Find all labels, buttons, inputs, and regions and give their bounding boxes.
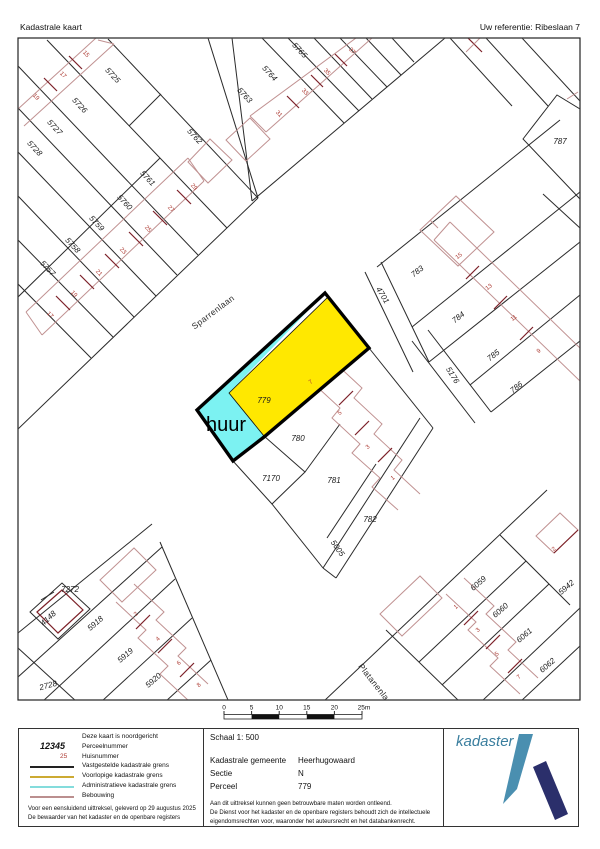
parcel-label: 5918 [86,614,106,633]
parcel-label: 4148 [39,609,59,628]
info-row-label: Kadastrale gemeente [210,756,286,765]
parcel-label: 5764 [260,64,279,84]
house-number: 19 [69,290,78,299]
parcel-label: 782 [363,515,377,524]
parcel-label: 6060 [491,601,511,620]
house-number: 29 [189,183,198,192]
legend-line-label: Administratieve kadastrale grens [82,782,176,789]
parcel-label: 6062 [538,656,558,675]
house-number: 35 [322,68,331,77]
disclaimer-line: De Dienst voor het kadaster en de openba… [210,810,430,816]
legend-parcel-sample: 12345 [40,741,65,751]
parcel-label: 7170 [262,474,280,483]
parcel-label: 781 [327,476,340,485]
legend-footer-2: De bewaarder van het kadaster en de open… [28,815,180,821]
legend-house-sample: 25 [60,753,67,760]
parcel-label: 5759 [87,214,106,234]
house-number: 9 [536,348,543,355]
scale-tick-label: 20 [331,705,339,712]
parcel-label: 7272 [61,585,79,594]
house-number: 15 [81,50,90,59]
house-number: 19 [31,93,40,102]
legend-line-administratief [30,786,74,788]
house-number: 6 [176,660,183,667]
house-number: 1 [453,604,460,611]
legend-north-note: Deze kaart is noordgericht [82,733,158,740]
disclaimer-line: Aan dit uittreksel kunnen geen betrouwba… [210,801,392,807]
parcel-label: 5726 [70,96,89,116]
legend-line-bebouwing [30,796,74,798]
house-number: 25 [143,225,152,234]
parcel-label: 5760 [115,193,134,213]
house-number: 15 [455,252,464,261]
scale-tick-label: 25m [358,705,371,712]
scale-tick-label: 5 [250,705,254,712]
house-number: 3 [475,627,482,634]
legend-footer-1: Voor een eensluidend uittreksel, gelever… [28,806,196,812]
legend-line-vastgesteld [30,766,74,768]
info-row-value: N [298,769,304,778]
parcel-label: 5728 [25,139,44,159]
scale-text: Schaal 1: 500 [210,733,259,742]
info-row-label: Perceel [210,782,237,791]
disclaimer-line: eigendomsrechten voor, waaronder het aut… [210,819,415,825]
street-label-sparrenlaan: Sparrenlaan [190,293,237,332]
legend-line-voorlopig [30,776,74,778]
scale-bar: 0 5 10 15 20 25m [222,705,370,720]
legend-house-label: Huisnummer [82,753,119,760]
parcel-label: 5763 [235,86,254,106]
parcel-label: 6059 [469,574,489,593]
house-number: 4 [155,636,162,643]
house-number: 5 [494,651,501,658]
parcel-label: 6061 [515,626,534,644]
kadaster-wordmark: kadaster [456,733,514,750]
parcel-label: 5761 [138,169,157,188]
parcel-label: 780 [291,434,305,443]
cadastral-map: Sparrenlaan Platanenlaan huur 5725 5726 … [0,0,600,849]
scale-tick-label: 15 [303,705,311,712]
parcel-label: 784 [450,309,466,325]
legend-line-label: Voorlopige kadastrale grens [82,772,163,779]
house-number: 5 [337,410,344,417]
parcel-label: 5942 [557,578,577,597]
house-number: 7 [516,674,523,681]
parcel-label: 5919 [116,646,136,665]
parcel-label: 787 [553,137,567,146]
legend-parcel-label: Perceelnummer [82,743,128,750]
info-row-value: Heerhugowaard [298,756,355,765]
house-number: 17 [58,71,67,80]
info-row-label: Sectie [210,769,232,778]
house-number: 37 [347,47,356,56]
panel-divider [443,728,444,827]
house-number: 3 [365,444,372,451]
legend-line-label: Vastgestelde kadastrale grens [82,762,169,769]
house-number: 33 [300,88,309,97]
kadastrale-kaart-page: Kadastrale kaart Uw referentie: Ribeslaa… [0,0,600,849]
panel-divider [203,728,204,827]
scale-tick-label: 0 [222,705,226,712]
house-number: 8 [196,682,203,689]
parcel-label: 786 [508,379,524,395]
parcel-label: 5762 [185,127,204,147]
parcel-label: 5176 [444,365,461,385]
info-row-value: 779 [298,782,311,791]
parcel-label: 783 [409,263,425,279]
scale-tick-label: 10 [276,705,284,712]
parcel-label: 779 [257,396,271,405]
house-number: 27 [166,205,175,214]
house-number: 1 [390,475,397,482]
parcel-label: 5727 [45,118,64,138]
street-label-platanenlaan: Platanenlaan [356,661,397,710]
legend-line-label: Bebouwing [82,792,114,799]
parcel-label: 5725 [103,66,122,86]
lease-label: huur [206,414,246,436]
house-number: 13 [485,283,494,292]
